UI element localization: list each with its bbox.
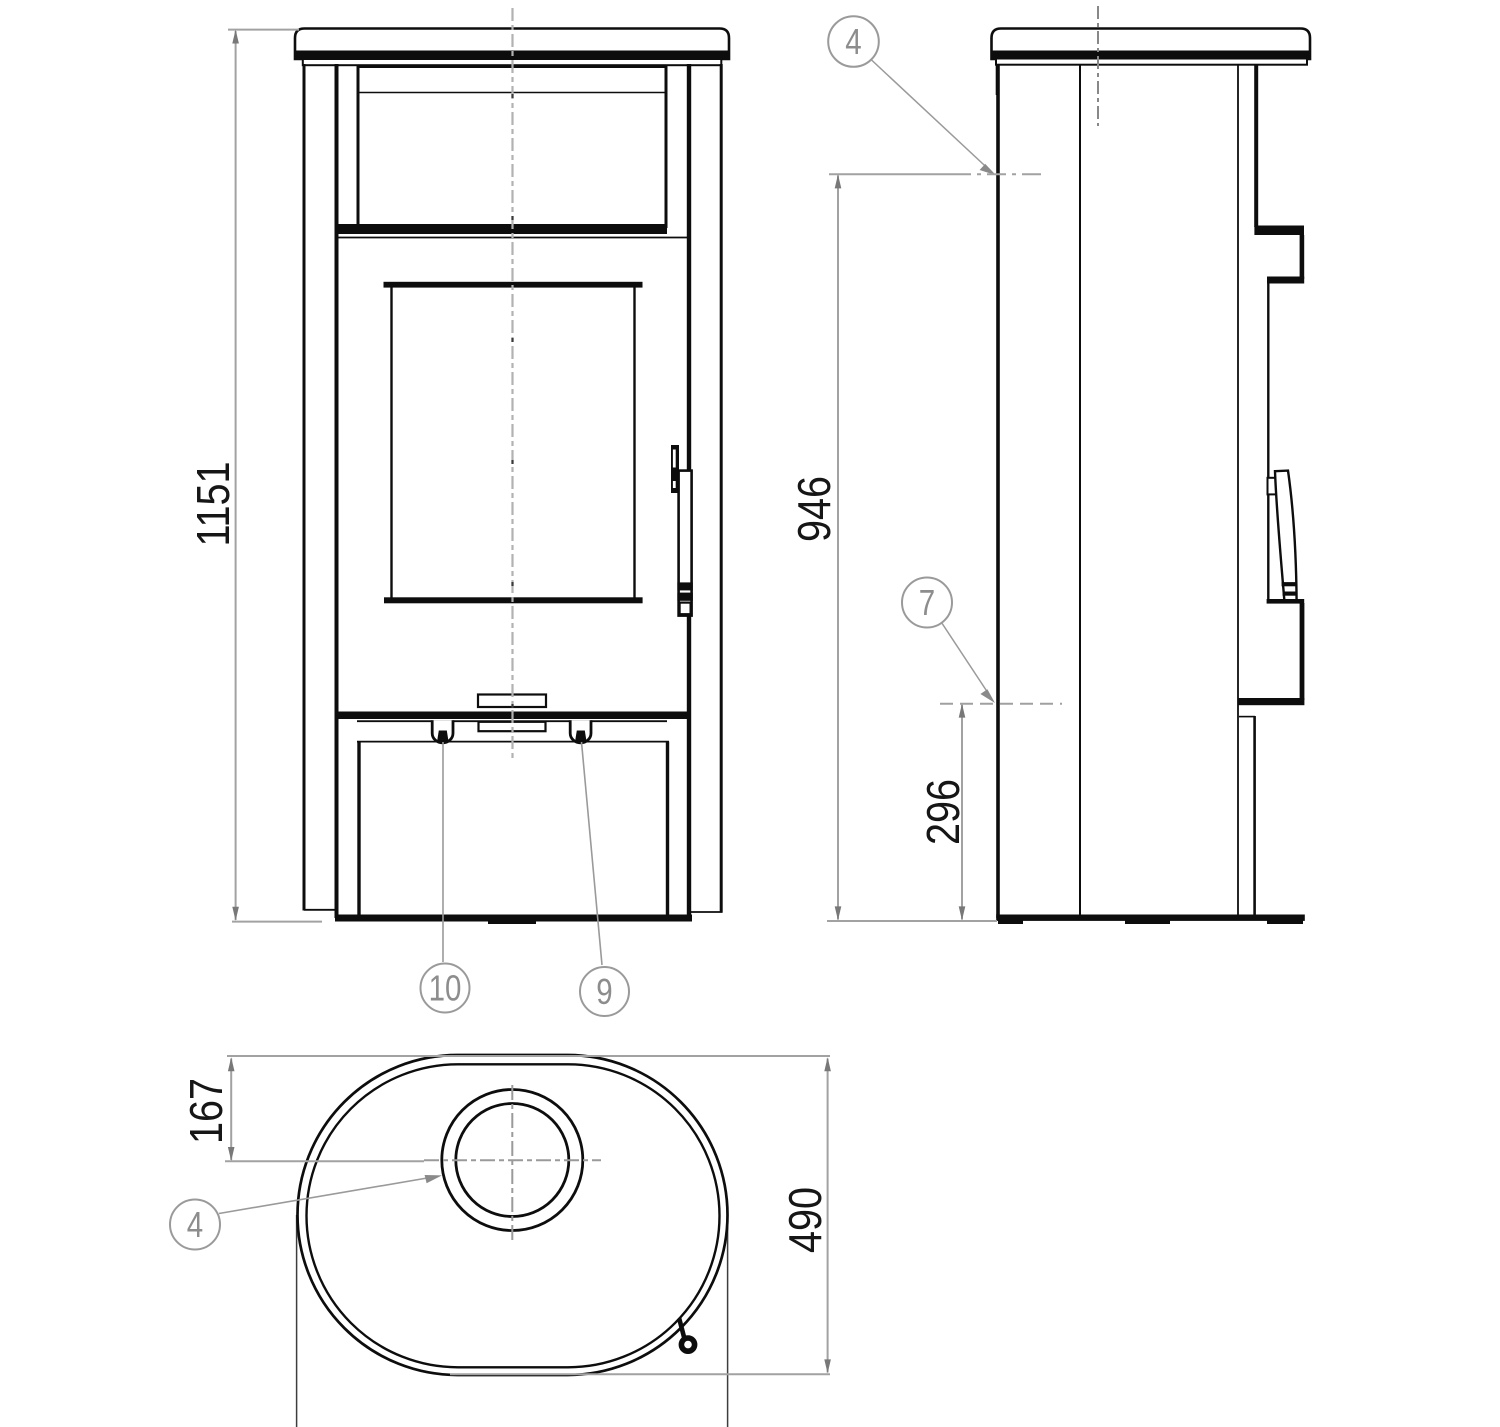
svg-text:167: 167 [181, 1078, 232, 1144]
svg-text:7: 7 [919, 582, 935, 622]
svg-text:9: 9 [596, 971, 612, 1011]
svg-text:296: 296 [918, 779, 969, 845]
svg-text:10: 10 [429, 968, 462, 1008]
svg-text:4: 4 [845, 21, 861, 61]
svg-text:1151: 1151 [188, 461, 239, 546]
svg-text:4: 4 [187, 1204, 203, 1244]
svg-text:946: 946 [789, 476, 840, 542]
svg-text:490: 490 [780, 1187, 831, 1253]
